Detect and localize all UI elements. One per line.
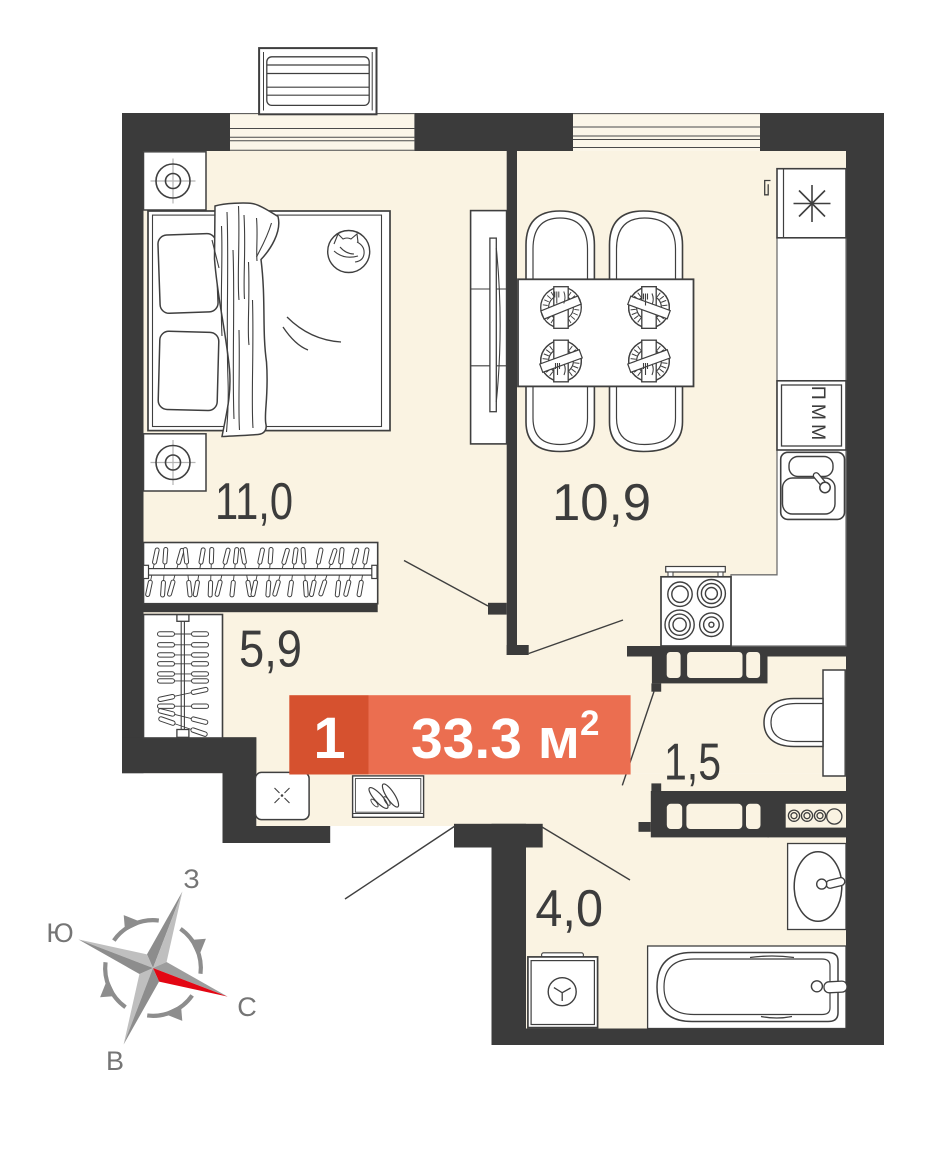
svg-text:ПММ: ПММ (807, 386, 829, 445)
svg-text:Ю: Ю (46, 918, 73, 948)
svg-text:33.3 м2: 33.3 м2 (411, 704, 599, 771)
svg-text:С: С (237, 992, 257, 1022)
svg-text:В: В (106, 1046, 124, 1076)
svg-text:10,9: 10,9 (552, 474, 651, 532)
svg-text:З: З (183, 864, 199, 894)
svg-text:4,0: 4,0 (535, 880, 603, 938)
svg-text:1: 1 (313, 706, 345, 771)
svg-text:11,0: 11,0 (215, 473, 293, 531)
svg-text:1,5: 1,5 (664, 734, 721, 792)
svg-text:5,9: 5,9 (239, 621, 302, 679)
